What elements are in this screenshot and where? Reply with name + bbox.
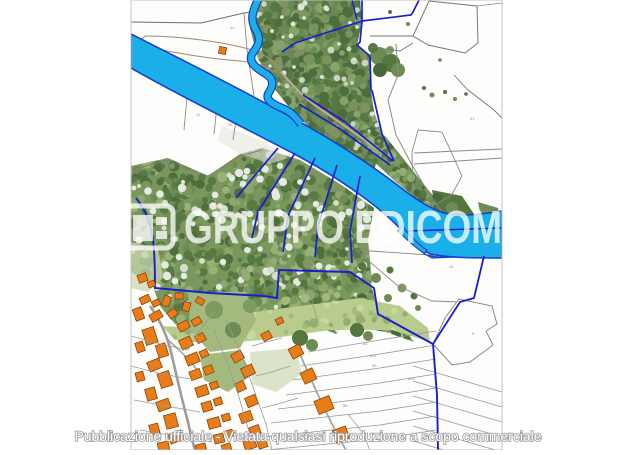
svg-text:99: 99 [372,363,377,368]
svg-text:41: 41 [470,116,475,121]
svg-text:15: 15 [449,264,454,269]
svg-text:Pubblicazione ufficiale - Viet: Pubblicazione ufficiale - Vietata qualsi… [75,429,542,444]
svg-text:463: 463 [408,376,415,381]
svg-text:22: 22 [230,25,235,30]
svg-text:84: 84 [363,341,368,346]
svg-text:88: 88 [343,403,348,408]
svg-text:35: 35 [228,122,233,127]
svg-text:GRUPPO EDICOM: GRUPPO EDICOM [184,201,502,253]
svg-text:12: 12 [196,112,201,117]
svg-text:E: E [472,331,475,336]
svg-text:163: 163 [369,353,376,358]
